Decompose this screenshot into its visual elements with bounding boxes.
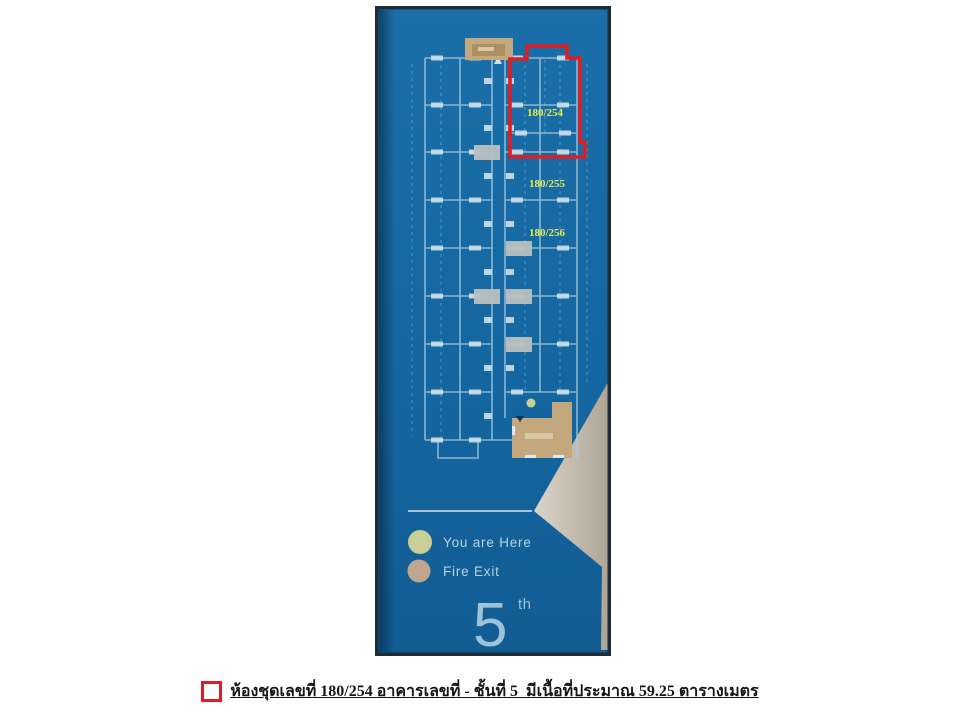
floor-number: 5: [473, 591, 508, 656]
legend-you-are-here-dot: [408, 530, 432, 554]
floor-number-suffix: th: [518, 596, 532, 613]
unit-label-180-255: 180/255: [529, 178, 566, 190]
floor-sign-graphic: 180/254 180/255 180/256 You are Here Fir…: [375, 6, 611, 656]
sign-background: [375, 6, 611, 656]
floor-sign-photo: 180/254 180/255 180/256 You are Here Fir…: [375, 6, 611, 656]
legend-you-are-here-label: You are Here: [443, 535, 532, 550]
caption: ห้องชุดเลขที่ 180/254 อาคารเลขที่ - ชั้น…: [0, 679, 960, 704]
document-page: 180/254 180/255 180/256 You are Here Fir…: [0, 0, 960, 720]
caption-highlight-box: [201, 681, 222, 702]
caption-text: ห้องชุดเลขที่ 180/254 อาคารเลขที่ - ชั้น…: [230, 679, 758, 704]
legend-fire-exit-label: Fire Exit: [443, 564, 500, 579]
you-are-here-dot: [527, 399, 536, 408]
elevator-block: [465, 38, 513, 60]
legend-fire-exit-dot: [408, 560, 431, 583]
sign-left-shading: [379, 10, 395, 652]
unit-label-180-254: 180/254: [527, 107, 564, 119]
unit-label-180-256: 180/256: [529, 227, 566, 239]
